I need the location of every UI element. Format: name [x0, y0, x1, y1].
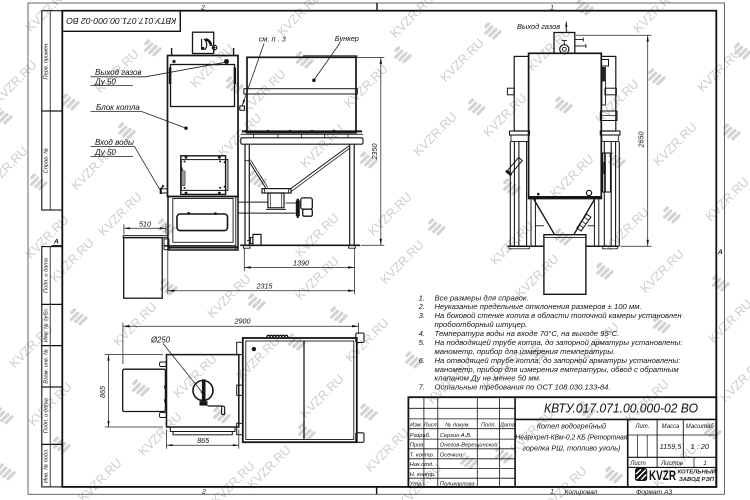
svg-text:Утв.: Утв. — [409, 482, 423, 488]
svg-text:манометр, прибор для измерения: манометр, прибор для измерения температу… — [435, 347, 616, 356]
svg-text:1: 1 — [550, 5, 554, 12]
svg-text:7.: 7. — [419, 383, 425, 392]
svg-text:Поликарпова: Поликарпова — [440, 482, 475, 488]
svg-text:1 : 20: 1 : 20 — [691, 442, 709, 451]
svg-text:Листов: Листов — [660, 461, 683, 467]
svg-text:Разраб.: Разраб. — [410, 433, 431, 439]
svg-text:№ докум.: № докум. — [445, 422, 470, 428]
svg-text:ЗАВОД РЭП: ЗАВОД РЭП — [679, 477, 715, 483]
svg-text:Подп. и дата: Подп. и дата — [44, 398, 50, 433]
svg-text:510: 510 — [139, 219, 151, 228]
svg-text:Все размеры для справок.: Все размеры для справок. — [435, 293, 529, 302]
svg-text:На отводящей трубе котла, до з: На отводящей трубе котла, до запорной ар… — [435, 356, 681, 365]
svg-text:865: 865 — [197, 436, 210, 445]
svg-text:Heatexpert-КВм-0,2 КБ (Ретортн: Heatexpert-КВм-0,2 КБ (Ретортная — [515, 433, 627, 442]
svg-text:Изм.: Изм. — [410, 422, 422, 428]
svg-text:Пров.: Пров. — [410, 443, 425, 449]
svg-text:Подп.: Подп. — [481, 422, 496, 428]
svg-text:1159,5: 1159,5 — [660, 442, 683, 451]
svg-text:Т. контр.: Т. контр. — [410, 453, 435, 459]
svg-text:Перв. примен.: Перв. примен. — [44, 42, 50, 79]
svg-text:КВТУ.017.071.00.000-02 ВО: КВТУ.017.071.00.000-02 ВО — [66, 16, 176, 26]
svg-text:Ду 50: Ду 50 — [94, 77, 116, 86]
svg-text:Блок котла: Блок котла — [96, 103, 140, 112]
svg-text:1390: 1390 — [293, 258, 309, 267]
svg-text:Справ. №: Справ. № — [44, 148, 50, 173]
svg-text:865: 865 — [98, 385, 107, 398]
svg-text:Неуказаные предельные отклонен: Неуказаные предельные отклонения размеро… — [435, 302, 642, 311]
svg-text:Н. контр.: Н. контр. — [410, 472, 436, 478]
svg-text:Ø250: Ø250 — [150, 335, 171, 344]
svg-text:Выход газов: Выход газов — [517, 22, 560, 31]
svg-text:Выход газов: Выход газов — [95, 68, 142, 77]
svg-text:Инв. № подл.: Инв. № подл. — [44, 448, 50, 483]
svg-text:На подводящей трубе котла, до: На подводящей трубе котла, до запорной а… — [435, 338, 683, 347]
svg-text:манометр, прибор для измерения: манометр, прибор для измерения емператур… — [435, 365, 680, 374]
svg-text:Котел водогрейный: Котел водогрейный — [537, 422, 606, 431]
svg-text:Масса: Масса — [662, 424, 680, 430]
svg-text:1: 1 — [550, 489, 554, 496]
svg-text:2.: 2. — [418, 302, 425, 311]
svg-text:4.: 4. — [419, 329, 425, 338]
svg-text:Температура воды на входе 70°С: Температура воды на входе 70°С, на выход… — [435, 329, 620, 338]
svg-text:2900: 2900 — [234, 317, 251, 326]
svg-text:Формат А3: Формат А3 — [636, 489, 672, 496]
svg-text:Инв. № дубл.: Инв. № дубл. — [44, 308, 50, 342]
svg-text:А: А — [717, 249, 723, 256]
svg-text:см. п . 3: см. п . 3 — [259, 35, 287, 44]
svg-text:Масштаб: Масштаб — [686, 424, 715, 430]
svg-text:горелка РШ, топливо уголь): горелка РШ, топливо уголь) — [522, 444, 620, 453]
svg-text:Нач.отд.: Нач.отд. — [410, 462, 434, 468]
svg-text:2: 2 — [201, 489, 206, 496]
svg-text:Ду 50: Ду 50 — [94, 148, 116, 157]
svg-text:клапаном Ду не менее 50 мм.: клапаном Ду не менее 50 мм. — [435, 374, 542, 383]
svg-text:Лит.: Лит. — [634, 424, 649, 430]
svg-text:Лист: Лист — [423, 422, 439, 428]
svg-text:KVZR: KVZR — [649, 468, 676, 483]
svg-text:Подп. и дата: Подп. и дата — [44, 258, 50, 293]
svg-text:Дата: Дата — [499, 422, 515, 428]
svg-text:1: 1 — [703, 461, 706, 467]
svg-text:А: А — [53, 239, 59, 246]
svg-text:1.: 1. — [419, 293, 425, 302]
svg-text:2: 2 — [200, 5, 205, 12]
svg-text:КВТУ.017.071.00.000-02 ВО: КВТУ.017.071.00.000-02 ВО — [544, 402, 698, 416]
svg-text:Онегов-Верещинский: Онегов-Верещинский — [440, 442, 499, 449]
svg-text:Осечкин: Осечкин — [440, 453, 463, 459]
svg-text:На боковой стенке котла в обла: На боковой стенке котла в области топочн… — [435, 311, 683, 320]
svg-text:Сергин А.В.: Сергин А.В. — [440, 433, 472, 439]
svg-text:Лист: Лист — [629, 461, 645, 467]
svg-text:6.: 6. — [419, 356, 425, 365]
svg-text:2350: 2350 — [370, 144, 379, 161]
svg-text:5.: 5. — [419, 338, 425, 347]
svg-text:2315: 2315 — [256, 282, 274, 291]
svg-text:Вход воды: Вход воды — [95, 138, 134, 147]
svg-text:КОТЕЛЬНЫЙ: КОТЕЛЬНЫЙ — [678, 467, 717, 475]
svg-text:3.: 3. — [419, 311, 425, 320]
svg-text:2650: 2650 — [637, 132, 646, 149]
svg-text:пробоотборный штуцер.: пробоотборный штуцер. — [435, 320, 528, 329]
svg-text:Остальные требования по ОСТ 10: Остальные требования по ОСТ 108.030.133-… — [435, 383, 611, 392]
svg-text:Взам. инв. №: Взам. инв. № — [44, 349, 50, 384]
svg-text:Бункер: Бункер — [335, 34, 359, 43]
svg-text:Копировал: Копировал — [565, 489, 598, 496]
